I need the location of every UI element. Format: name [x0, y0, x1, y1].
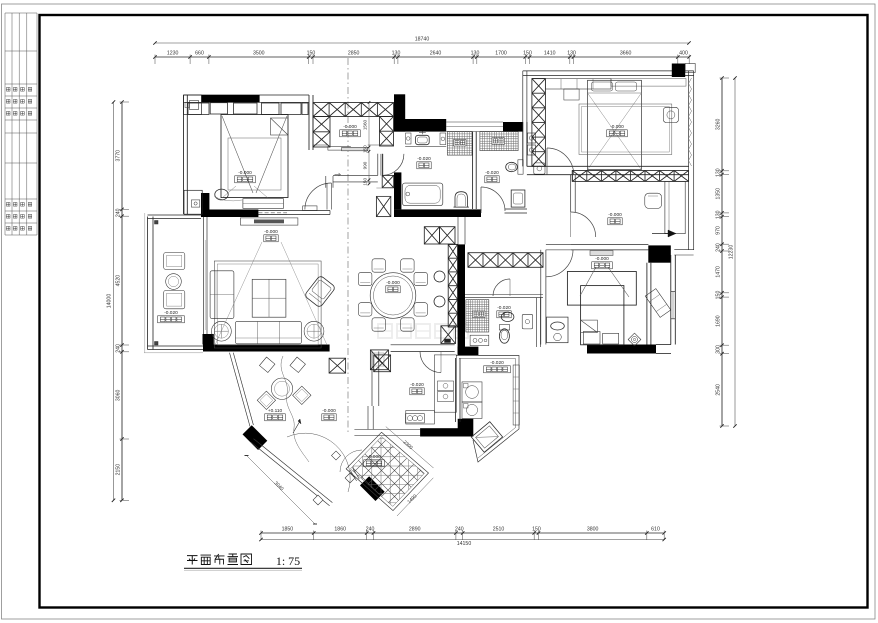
svg-text:660: 660	[195, 51, 204, 57]
svg-text:240: 240	[366, 527, 375, 533]
svg-text:1350: 1350	[716, 188, 722, 200]
svg-text:610: 610	[651, 527, 660, 533]
svg-text:2850: 2850	[348, 51, 360, 57]
svg-text:1: 75: 1: 75	[276, 554, 300, 568]
svg-text:3770: 3770	[116, 150, 122, 162]
svg-text:2890: 2890	[409, 527, 421, 533]
svg-text:240: 240	[455, 527, 464, 533]
svg-text:3060: 3060	[116, 390, 122, 402]
svg-text:4520: 4520	[116, 275, 122, 287]
svg-text:240: 240	[716, 243, 722, 252]
svg-text:1470: 1470	[716, 266, 722, 278]
svg-text:1560: 1560	[363, 119, 368, 130]
svg-text:12230: 12230	[729, 245, 735, 260]
svg-text:-0.020: -0.020	[490, 360, 504, 366]
svg-text:990: 990	[363, 161, 368, 169]
svg-text:300: 300	[716, 345, 722, 354]
svg-text:-0.000: -0.000	[264, 229, 278, 235]
svg-text:1850: 1850	[282, 527, 294, 533]
svg-text:150: 150	[716, 291, 722, 300]
svg-text:150: 150	[532, 527, 541, 533]
svg-text:240: 240	[116, 344, 122, 353]
svg-text:150: 150	[307, 51, 316, 57]
svg-text:-0.000: -0.000	[595, 256, 609, 262]
svg-text:-0.020: -0.020	[410, 382, 424, 388]
svg-text:3660: 3660	[620, 51, 632, 57]
svg-text:2640: 2640	[430, 51, 442, 57]
svg-text:240: 240	[116, 208, 122, 217]
svg-text:1230: 1230	[167, 51, 179, 57]
svg-text:1410: 1410	[544, 51, 556, 57]
svg-text:-0.000: -0.000	[322, 408, 336, 414]
svg-text:-0.020: -0.020	[417, 156, 431, 162]
svg-text:130: 130	[716, 168, 722, 177]
svg-text:150: 150	[363, 145, 368, 153]
svg-text:130: 130	[392, 51, 401, 57]
svg-text:14000: 14000	[107, 294, 113, 309]
svg-text:-0.020: -0.020	[497, 305, 511, 311]
svg-text:-0.020: -0.020	[485, 170, 499, 176]
svg-text:3260: 3260	[716, 119, 722, 131]
svg-text:150: 150	[363, 178, 368, 186]
svg-text:+0.110: +0.110	[268, 408, 283, 414]
svg-text:2540: 2540	[716, 384, 722, 396]
svg-text:2150: 2150	[116, 464, 122, 476]
svg-text:130: 130	[471, 51, 480, 57]
svg-text:3500: 3500	[253, 51, 265, 57]
svg-text:-0.000: -0.000	[238, 170, 252, 176]
svg-text:2510: 2510	[493, 527, 505, 533]
svg-text:1700: 1700	[495, 51, 507, 57]
svg-text:3800: 3800	[587, 527, 599, 533]
svg-text:-0.000: -0.000	[386, 280, 400, 286]
svg-text:-0.000: -0.000	[608, 212, 622, 218]
svg-text:1860: 1860	[334, 527, 346, 533]
svg-text:14150: 14150	[457, 541, 472, 547]
svg-text:-0.020: -0.020	[164, 310, 178, 316]
svg-text:130: 130	[716, 210, 722, 219]
svg-text:130: 130	[567, 51, 576, 57]
svg-text:-0.000: -0.000	[367, 454, 381, 460]
svg-text:970: 970	[716, 226, 722, 235]
svg-text:-0.000: -0.000	[610, 124, 624, 130]
svg-text:-0.000: -0.000	[343, 124, 357, 130]
svg-text:150: 150	[523, 51, 532, 57]
svg-text:400: 400	[679, 51, 688, 57]
svg-text:18740: 18740	[415, 37, 430, 43]
svg-text:1690: 1690	[716, 315, 722, 327]
